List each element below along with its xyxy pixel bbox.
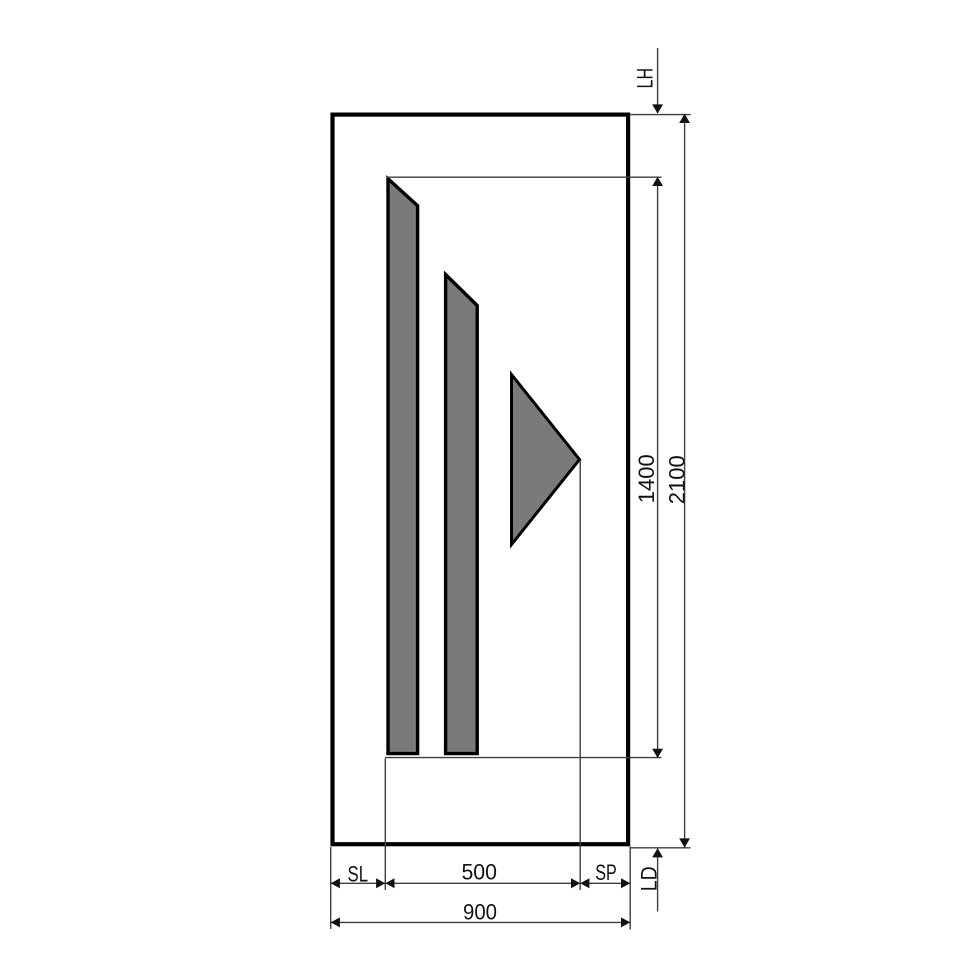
svg-text:2100: 2100 — [664, 455, 689, 504]
svg-text:1400: 1400 — [634, 454, 659, 503]
svg-text:LD: LD — [636, 866, 661, 891]
svg-text:900: 900 — [463, 899, 497, 924]
svg-text:500: 500 — [461, 860, 497, 885]
svg-text:SL: SL — [348, 862, 369, 887]
svg-text:LH: LH — [633, 68, 658, 89]
svg-text:SP: SP — [595, 860, 617, 885]
